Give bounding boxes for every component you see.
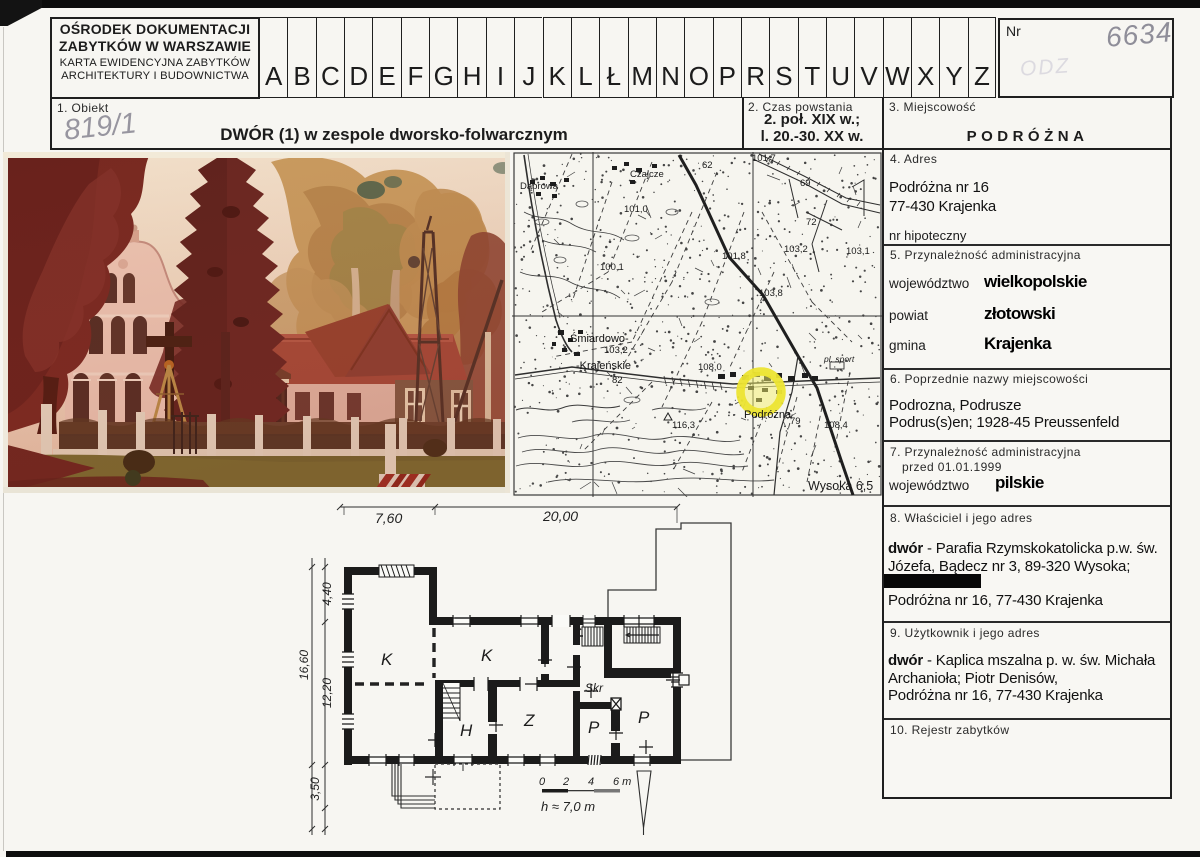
svg-text:H: H [460, 721, 473, 740]
svg-text:-Krajeńskie: -Krajeńskie [576, 360, 631, 372]
svg-text:pl. sport: pl. sport [823, 354, 855, 364]
svg-text:2: 2 [562, 776, 569, 788]
svg-text:62: 62 [702, 160, 713, 171]
svg-text:0: 0 [539, 776, 546, 788]
svg-text:Czajcze: Czajcze [630, 169, 664, 180]
svg-text:20,00: 20,00 [542, 508, 578, 524]
svg-text:101,0: 101,0 [624, 204, 648, 215]
svg-text:6 m: 6 m [613, 776, 631, 788]
svg-text:K: K [481, 646, 493, 665]
svg-text:Z: Z [523, 711, 535, 730]
svg-text:101,8: 101,8 [722, 251, 746, 262]
svg-text:108,0: 108,0 [698, 362, 722, 373]
svg-text:103,1: 103,1 [846, 246, 870, 257]
svg-text:16,60: 16,60 [297, 650, 311, 680]
svg-text:Dąbrowa: Dąbrowa [520, 181, 559, 192]
svg-text:72: 72 [806, 217, 817, 228]
svg-text:103,2: 103,2 [784, 244, 808, 255]
svg-text:P: P [588, 718, 600, 737]
svg-text:3,50: 3,50 [308, 777, 322, 801]
svg-text:79: 79 [790, 416, 801, 427]
svg-text:4: 4 [588, 776, 594, 788]
svg-text:69: 69 [800, 178, 811, 189]
svg-text:Podróżna: Podróżna [744, 409, 792, 421]
svg-text:Śmiardowo-: Śmiardowo- [570, 332, 629, 345]
svg-text:K: K [381, 650, 393, 669]
svg-text:h ≈ 7,0 m: h ≈ 7,0 m [541, 799, 595, 814]
svg-text:Wysoka 6,5: Wysoka 6,5 [808, 479, 873, 493]
svg-text:7,60: 7,60 [375, 510, 402, 526]
svg-text:108,4: 108,4 [824, 420, 848, 431]
svg-text:Skr: Skr [585, 681, 604, 695]
svg-text:82: 82 [612, 375, 623, 386]
svg-text:101,7: 101,7 [752, 153, 776, 164]
svg-text:12,20: 12,20 [320, 678, 334, 708]
svg-text:100,1: 100,1 [600, 262, 624, 273]
svg-text:4,40: 4,40 [320, 582, 334, 606]
svg-text:103,8: 103,8 [759, 288, 783, 299]
svg-text:116,3: 116,3 [672, 420, 695, 431]
svg-text:P: P [638, 708, 650, 727]
svg-text:103,2: 103,2 [604, 345, 628, 356]
